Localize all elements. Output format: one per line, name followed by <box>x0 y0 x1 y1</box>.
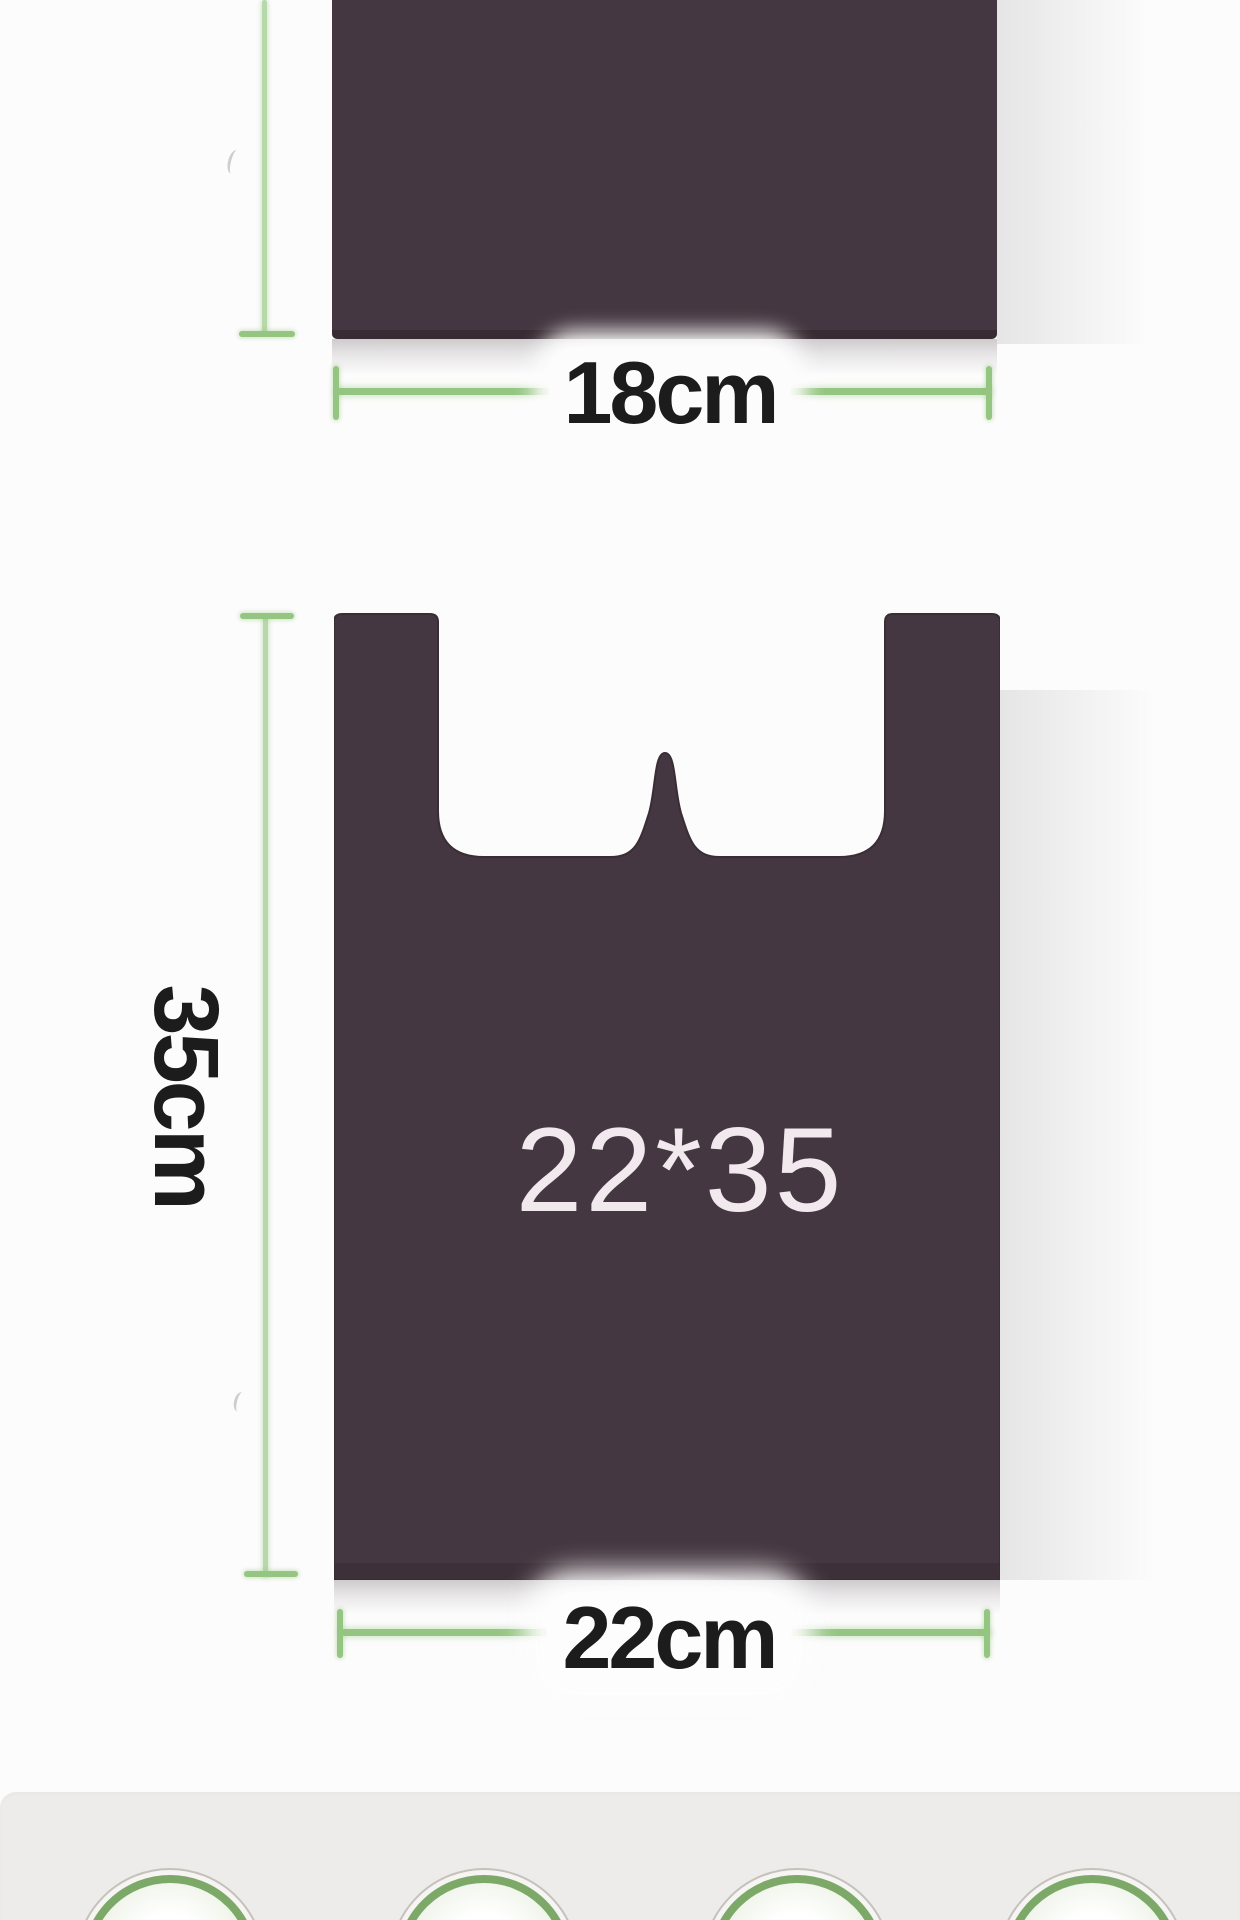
bag-size-label: 22*35 <box>516 1110 845 1230</box>
vest-bag-side-shade <box>1000 690 1156 1580</box>
width-label-22: 22cm <box>546 1592 791 1684</box>
product-dimension-image: 18cm 22*35 35cm 22cm <box>0 0 1240 1920</box>
top-bag-photo <box>332 0 997 339</box>
height-dimension-line-35 <box>263 617 268 1577</box>
top-height-line-end-tick <box>239 331 295 337</box>
width-line-18-left-tick <box>333 366 339 420</box>
width-label-18: 18cm <box>549 347 790 439</box>
width-line-18-right-tick <box>986 366 992 420</box>
vest-bag-outline <box>334 614 1000 1580</box>
photo-artifact-mark <box>225 149 242 175</box>
height-label-35: 35cm <box>140 984 232 1207</box>
top-height-dimension-line <box>262 0 267 334</box>
vest-bag-shape <box>334 613 1000 1580</box>
photo-artifact-mark <box>232 1391 248 1413</box>
width-line-22-left-tick <box>337 1609 343 1658</box>
width-line-22-right-tick <box>984 1609 990 1658</box>
top-bag-side-shade <box>997 0 1149 344</box>
height-line-35-bottom-tick <box>244 1571 298 1577</box>
height-line-35-top-tick <box>240 613 294 619</box>
